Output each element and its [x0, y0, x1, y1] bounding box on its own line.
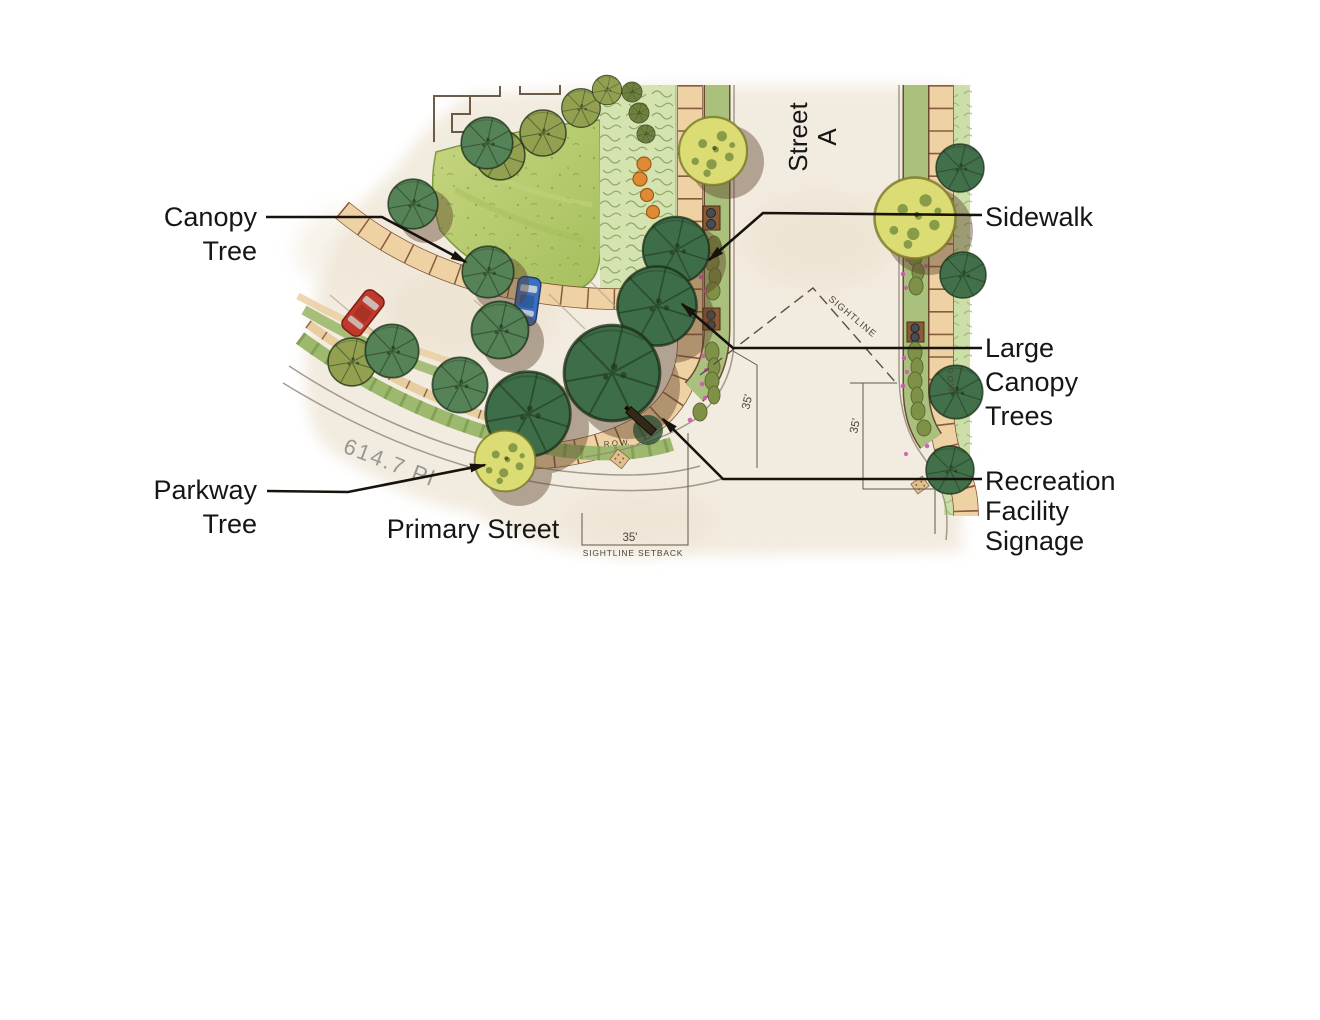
tree-canopy [365, 324, 418, 377]
tree-olive [592, 75, 621, 104]
shrub [622, 82, 642, 102]
large-canopy-tree [564, 325, 660, 421]
tree-canopy [461, 117, 513, 169]
site-plan-page: SIGHTLINE 35' 35' 35' SIGHTLINE SETBACK … [0, 0, 1320, 1020]
label-large-canopy-trees-line2: Canopy [985, 365, 1078, 399]
tree-canopy [462, 246, 514, 298]
sightline-setback-text: SIGHTLINE SETBACK [583, 548, 684, 558]
parkway-tree [475, 431, 536, 492]
dim-35-bottom: 35' [623, 532, 638, 544]
shrub [629, 103, 649, 123]
label-canopy-tree-line2: Tree [117, 234, 257, 268]
label-canopy-tree-line1: Canopy [117, 200, 257, 234]
tree-canopy [432, 357, 487, 412]
shrub [637, 125, 655, 143]
label-recreation-line3: Signage [985, 526, 1116, 556]
label-primary-street: Primary Street [368, 514, 578, 545]
label-street-a-line2: A [813, 102, 842, 171]
label-large-canopy-trees-line1: Large [985, 331, 1078, 365]
tree-canopy [471, 301, 528, 358]
label-canopy-tree: Canopy Tree [117, 200, 257, 268]
parkway-tree [679, 117, 747, 185]
label-parkway-tree: Parkway Tree [117, 473, 257, 541]
tree-edge [940, 252, 986, 298]
row-text-right: R.O.W. [945, 368, 956, 394]
label-parkway-tree-line2: Tree [117, 507, 257, 541]
label-sidewalk-line1: Sidewalk [985, 200, 1093, 234]
label-recreation-line2: Facility [985, 496, 1116, 526]
tree-canopy [388, 179, 438, 229]
label-parkway-tree-line1: Parkway [117, 473, 257, 507]
label-street-a-line1: Street [784, 102, 813, 171]
label-recreation-facility-signage: Recreation Facility Signage [985, 466, 1116, 556]
tree-edge [926, 446, 974, 494]
tree-edge [936, 144, 984, 192]
label-large-canopy-trees: Large Canopy Trees [985, 331, 1078, 433]
label-street-a: Street A [784, 102, 842, 171]
label-sidewalk: Sidewalk [985, 200, 1093, 234]
label-recreation-line1: Recreation [985, 466, 1116, 496]
label-large-canopy-trees-line3: Trees [985, 399, 1078, 433]
tree-olive [520, 110, 566, 156]
parkway-tree [875, 178, 956, 259]
